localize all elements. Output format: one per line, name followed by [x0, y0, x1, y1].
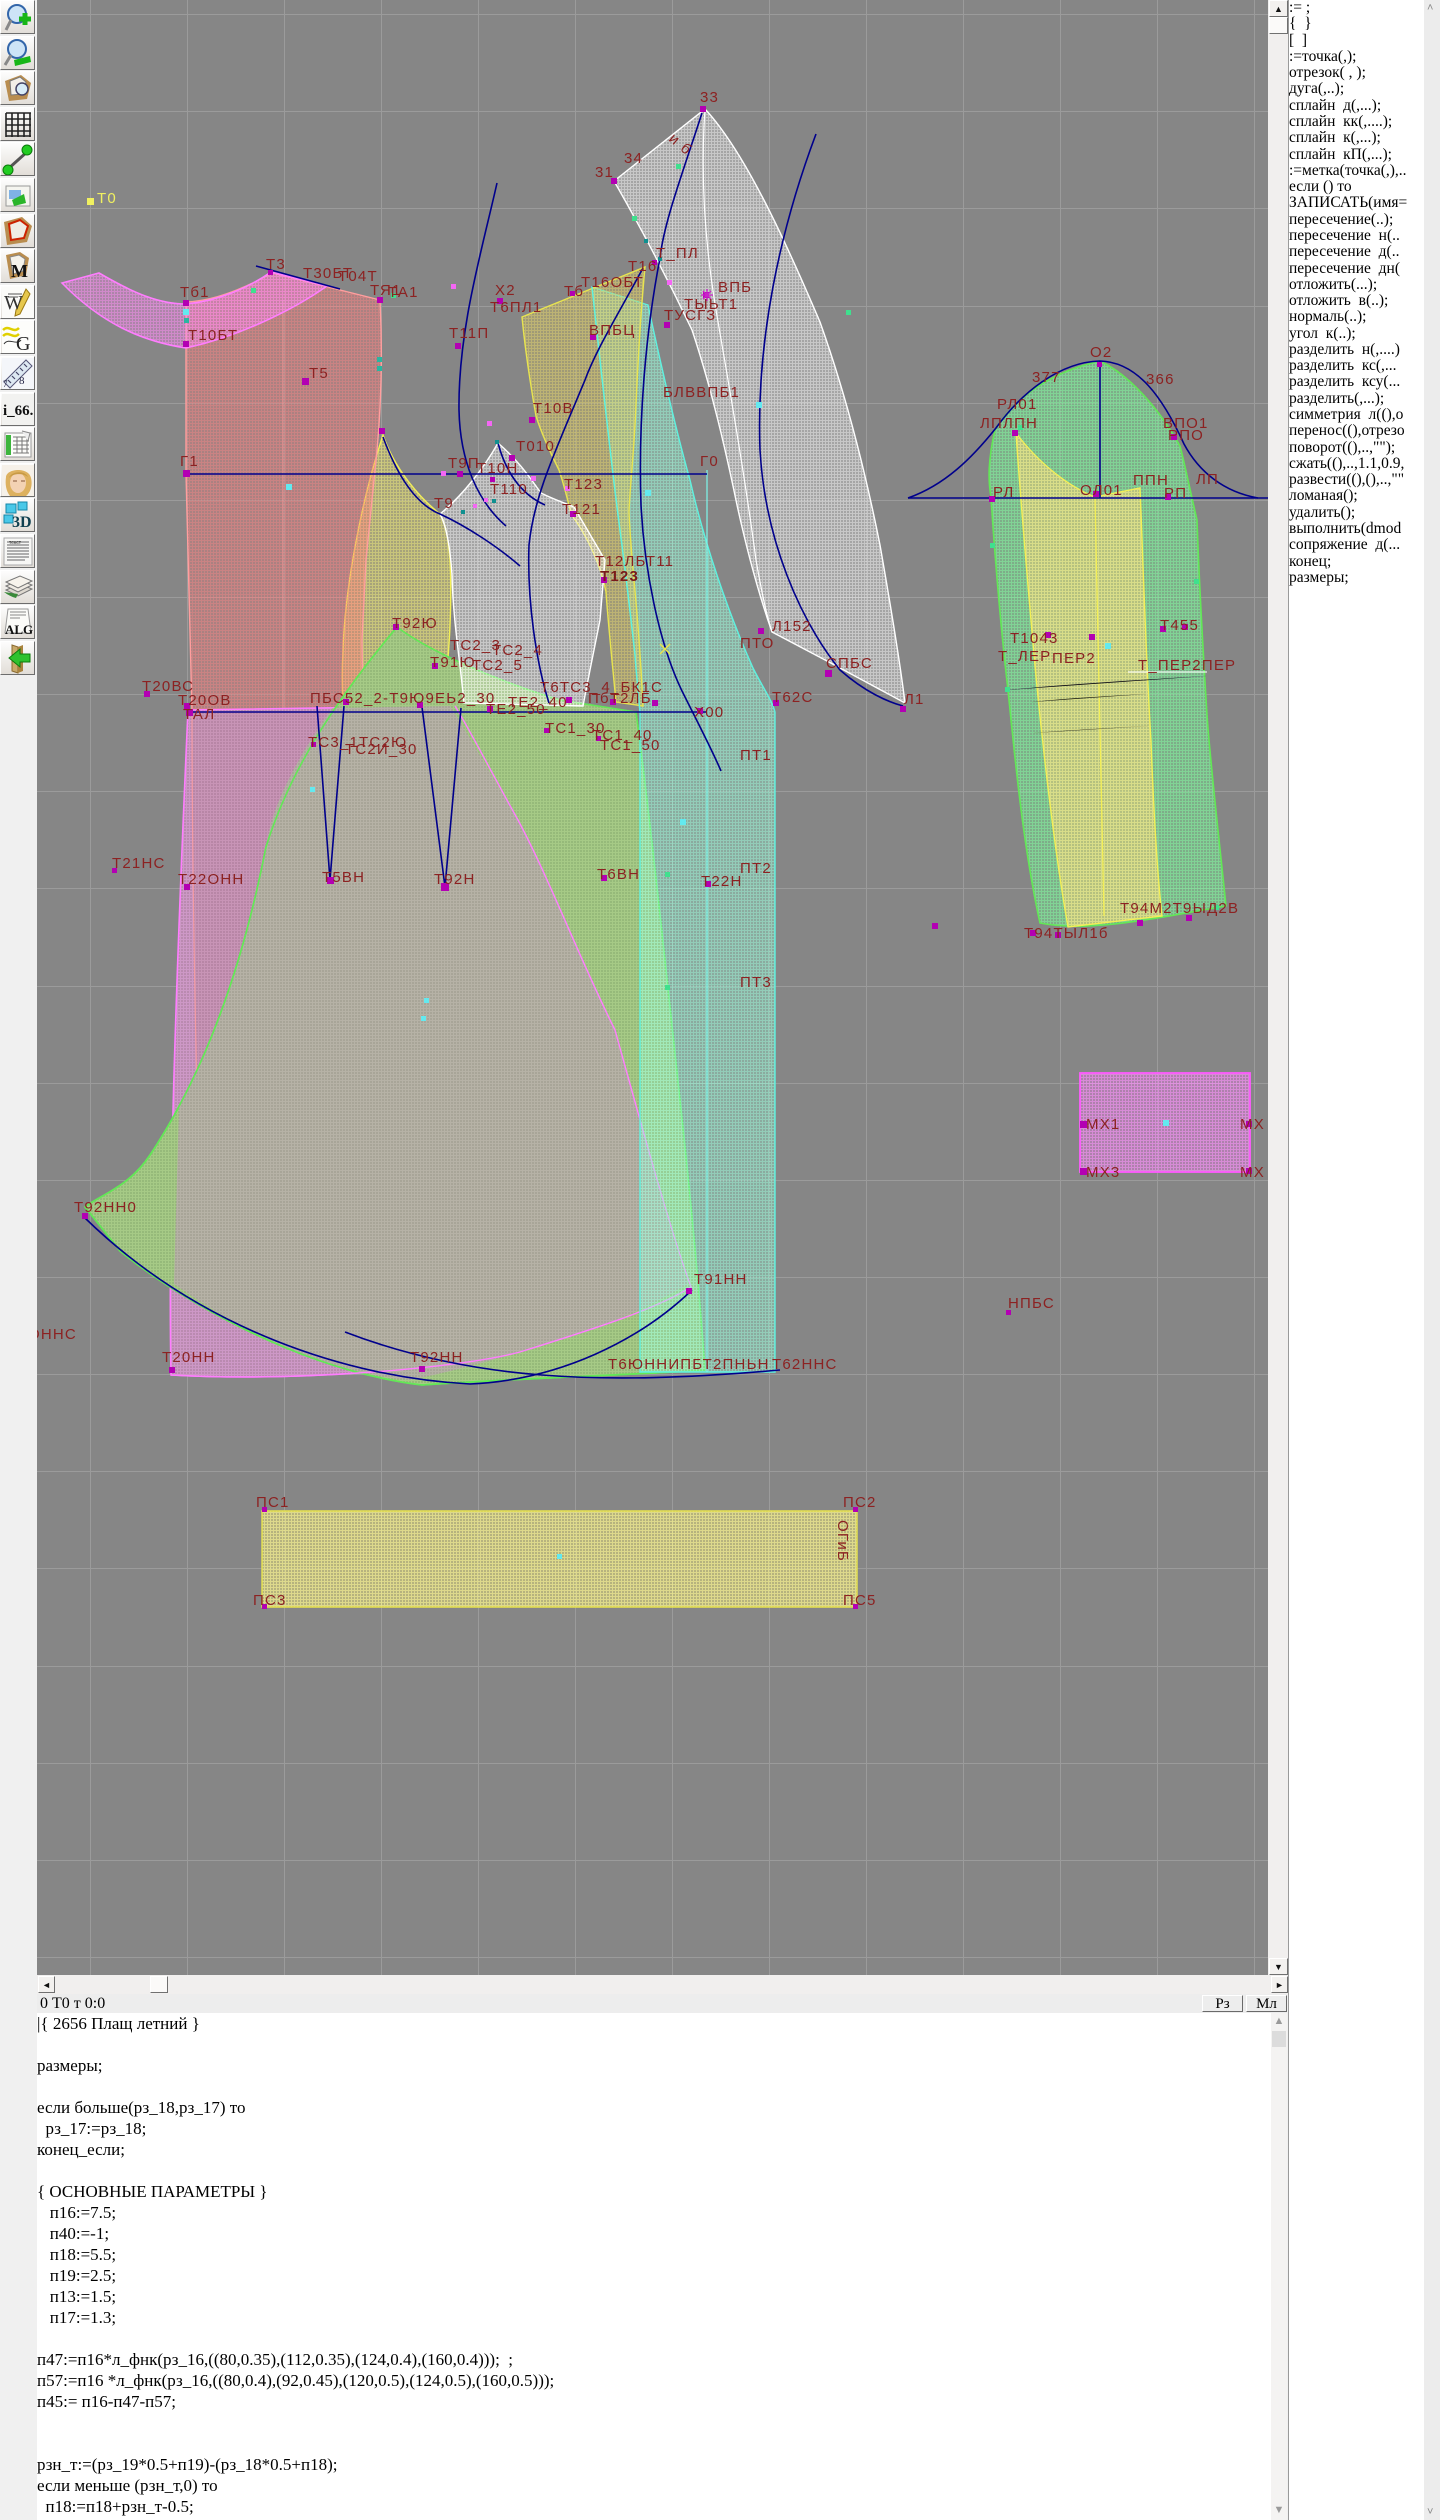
svg-text:Т_ПЛ: Т_ПЛ	[656, 245, 699, 262]
svg-text:ПЕР2: ПЕР2	[1052, 650, 1096, 667]
svg-text:БЛВВПБ1: БЛВВПБ1	[663, 384, 740, 401]
svg-text:ПС3: ПС3	[253, 1592, 287, 1609]
svg-text:ПС1: ПС1	[256, 1494, 290, 1511]
svg-text:МХ3: МХ3	[1086, 1164, 1120, 1181]
svg-text:ОННС: ОННС	[37, 1326, 77, 1343]
svg-text:ТС2_5: ТС2_5	[472, 657, 523, 674]
svg-text:Тб1: Тб1	[180, 284, 210, 301]
svg-text:Т94ТЫЛ1б: Т94ТЫЛ1б	[1024, 925, 1109, 942]
svg-text:Т123: Т123	[564, 476, 603, 493]
svg-text:Т6ЮННИПБТ2ПНЬН: Т6ЮННИПБТ2ПНЬН	[608, 1356, 770, 1373]
svg-text:33: 33	[700, 89, 719, 106]
svg-text:Т94М2Т9ЫД2В: Т94М2Т9ЫД2В	[1120, 900, 1239, 917]
svg-text:ПБС52_2-Т9Ю9ЕЬ2_30: ПБС52_2-Т9Ю9ЕЬ2_30	[310, 690, 495, 707]
svg-text:Т110: Т110	[490, 481, 528, 498]
svg-text:i_66.: i_66.	[3, 403, 34, 419]
svg-text:Т1043: Т1043	[1010, 630, 1059, 647]
svg-text:ТА1: ТА1	[388, 284, 419, 301]
svg-text:РЛ: РЛ	[993, 484, 1014, 501]
svg-text:О2: О2	[1090, 344, 1112, 361]
svg-text:377: 377	[1032, 369, 1061, 386]
svg-text:ПбТ2ЛБ: ПбТ2ЛБ	[588, 690, 652, 707]
svg-text:ПС2: ПС2	[843, 1494, 877, 1511]
svg-text:Л1: Л1	[904, 691, 925, 708]
svg-text:Г1: Г1	[180, 453, 199, 470]
svg-text:ТЕ2_50: ТЕ2_50	[486, 701, 546, 718]
svg-text:ПТ1: ПТ1	[740, 747, 772, 764]
svg-text:Т16: Т16	[628, 258, 657, 275]
svg-text:Л152: Л152	[772, 618, 812, 635]
svg-text:Т22ОНН: Т22ОНН	[178, 871, 244, 888]
svg-text:СПБС: СПБС	[826, 655, 873, 672]
svg-text:Т5ВН: Т5ВН	[322, 869, 365, 886]
svg-text:ВПБ: ВПБ	[718, 279, 752, 296]
svg-text:Тб: Тб	[564, 283, 584, 300]
svg-text:МХ: МХ	[1240, 1164, 1265, 1181]
svg-text:Т455: Т455	[1160, 617, 1199, 634]
svg-text:Т5: Т5	[309, 365, 329, 382]
svg-text:Т16ОБТ: Т16ОБТ	[581, 274, 644, 291]
svg-text:7: 7	[3, 379, 8, 389]
svg-text:ПТ2: ПТ2	[740, 860, 772, 877]
svg-text:G: G	[16, 333, 30, 353]
svg-text:M: M	[11, 261, 28, 281]
svg-text:Т62ННС: Т62ННС	[772, 1356, 838, 1373]
svg-text:РЛ01: РЛ01	[997, 396, 1038, 413]
svg-text:ВПБЦ: ВПБЦ	[589, 322, 636, 339]
svg-text:ЛПЛПН: ЛПЛПН	[980, 415, 1038, 432]
svg-text:Т91НН: Т91НН	[694, 1271, 748, 1288]
svg-text:3D: 3D	[12, 514, 32, 531]
svg-text:Х00: Х00	[694, 704, 724, 721]
svg-text:Т9: Т9	[434, 495, 454, 512]
svg-text:Т9П: Т9П	[448, 455, 480, 472]
svg-text:31: 31	[595, 164, 614, 181]
svg-text:Т11П: Т11П	[449, 325, 489, 342]
svg-text:8: 8	[19, 375, 25, 387]
svg-text:ТС2И_30: ТС2И_30	[345, 741, 418, 758]
svg-text:Т123: Т123	[600, 568, 639, 585]
svg-text:ЛП: ЛП	[1196, 471, 1219, 488]
svg-text:текст: текст	[9, 540, 22, 546]
svg-text:Т_ПЕР2ПЕР: Т_ПЕР2ПЕР	[1138, 657, 1236, 674]
svg-text:Т62С: Т62С	[772, 689, 813, 706]
svg-text:Т010: Т010	[516, 438, 555, 455]
svg-text:Т0: Т0	[97, 190, 117, 207]
svg-text:Т6ВН: Т6ВН	[597, 866, 640, 883]
svg-text:ОЛ01: ОЛ01	[1080, 482, 1123, 499]
svg-text:Т10БТ: Т10БТ	[188, 327, 238, 344]
svg-text:РП: РП	[1164, 485, 1187, 502]
svg-text:Т121: Т121	[562, 501, 601, 518]
svg-text:ТУСГЗ: ТУСГЗ	[664, 307, 716, 324]
svg-text:Т92НН0: Т92НН0	[74, 1199, 137, 1216]
svg-text:МХ1: МХ1	[1086, 1116, 1120, 1133]
svg-text:Т92Н: Т92Н	[434, 871, 475, 888]
svg-text:РПО: РПО	[1168, 427, 1204, 444]
svg-text:W: W	[4, 292, 23, 314]
svg-text:МХ: МХ	[1240, 1116, 1265, 1133]
svg-text:Т92НН: Т92НН	[410, 1349, 464, 1366]
svg-text:366: 366	[1146, 371, 1175, 388]
svg-text:ПС5: ПС5	[843, 1592, 877, 1609]
svg-text:Т22Н: Т22Н	[701, 873, 742, 890]
svg-text:Т91Ю: Т91Ю	[430, 654, 476, 671]
svg-text:НПБС: НПБС	[1008, 1295, 1055, 1312]
svg-text:ALG: ALG	[5, 622, 33, 637]
svg-text:ТАЛ: ТАЛ	[183, 706, 215, 723]
svg-text:Т_ЛЕР: Т_ЛЕР	[998, 648, 1051, 665]
svg-text:Т6ПЛ1: Т6ПЛ1	[490, 299, 542, 316]
svg-text:Т10В: Т10В	[533, 400, 574, 417]
svg-text:34: 34	[624, 150, 643, 167]
svg-text:Х2: Х2	[495, 282, 516, 299]
svg-text:ПТО: ПТО	[740, 635, 775, 652]
svg-text:Т21НС: Т21НС	[112, 855, 166, 872]
svg-text:ТС1_50: ТС1_50	[600, 737, 661, 754]
svg-text:Т20НН: Т20НН	[162, 1349, 216, 1366]
svg-text:Г0: Г0	[700, 453, 719, 470]
svg-text:Т3: Т3	[266, 256, 286, 273]
svg-text:ОГиБ: ОГиБ	[834, 1520, 851, 1562]
svg-text:ПТ3: ПТ3	[740, 974, 772, 991]
svg-text:Т92Ю: Т92Ю	[392, 615, 438, 632]
svg-text:Т10Н: Т10Н	[477, 460, 518, 477]
